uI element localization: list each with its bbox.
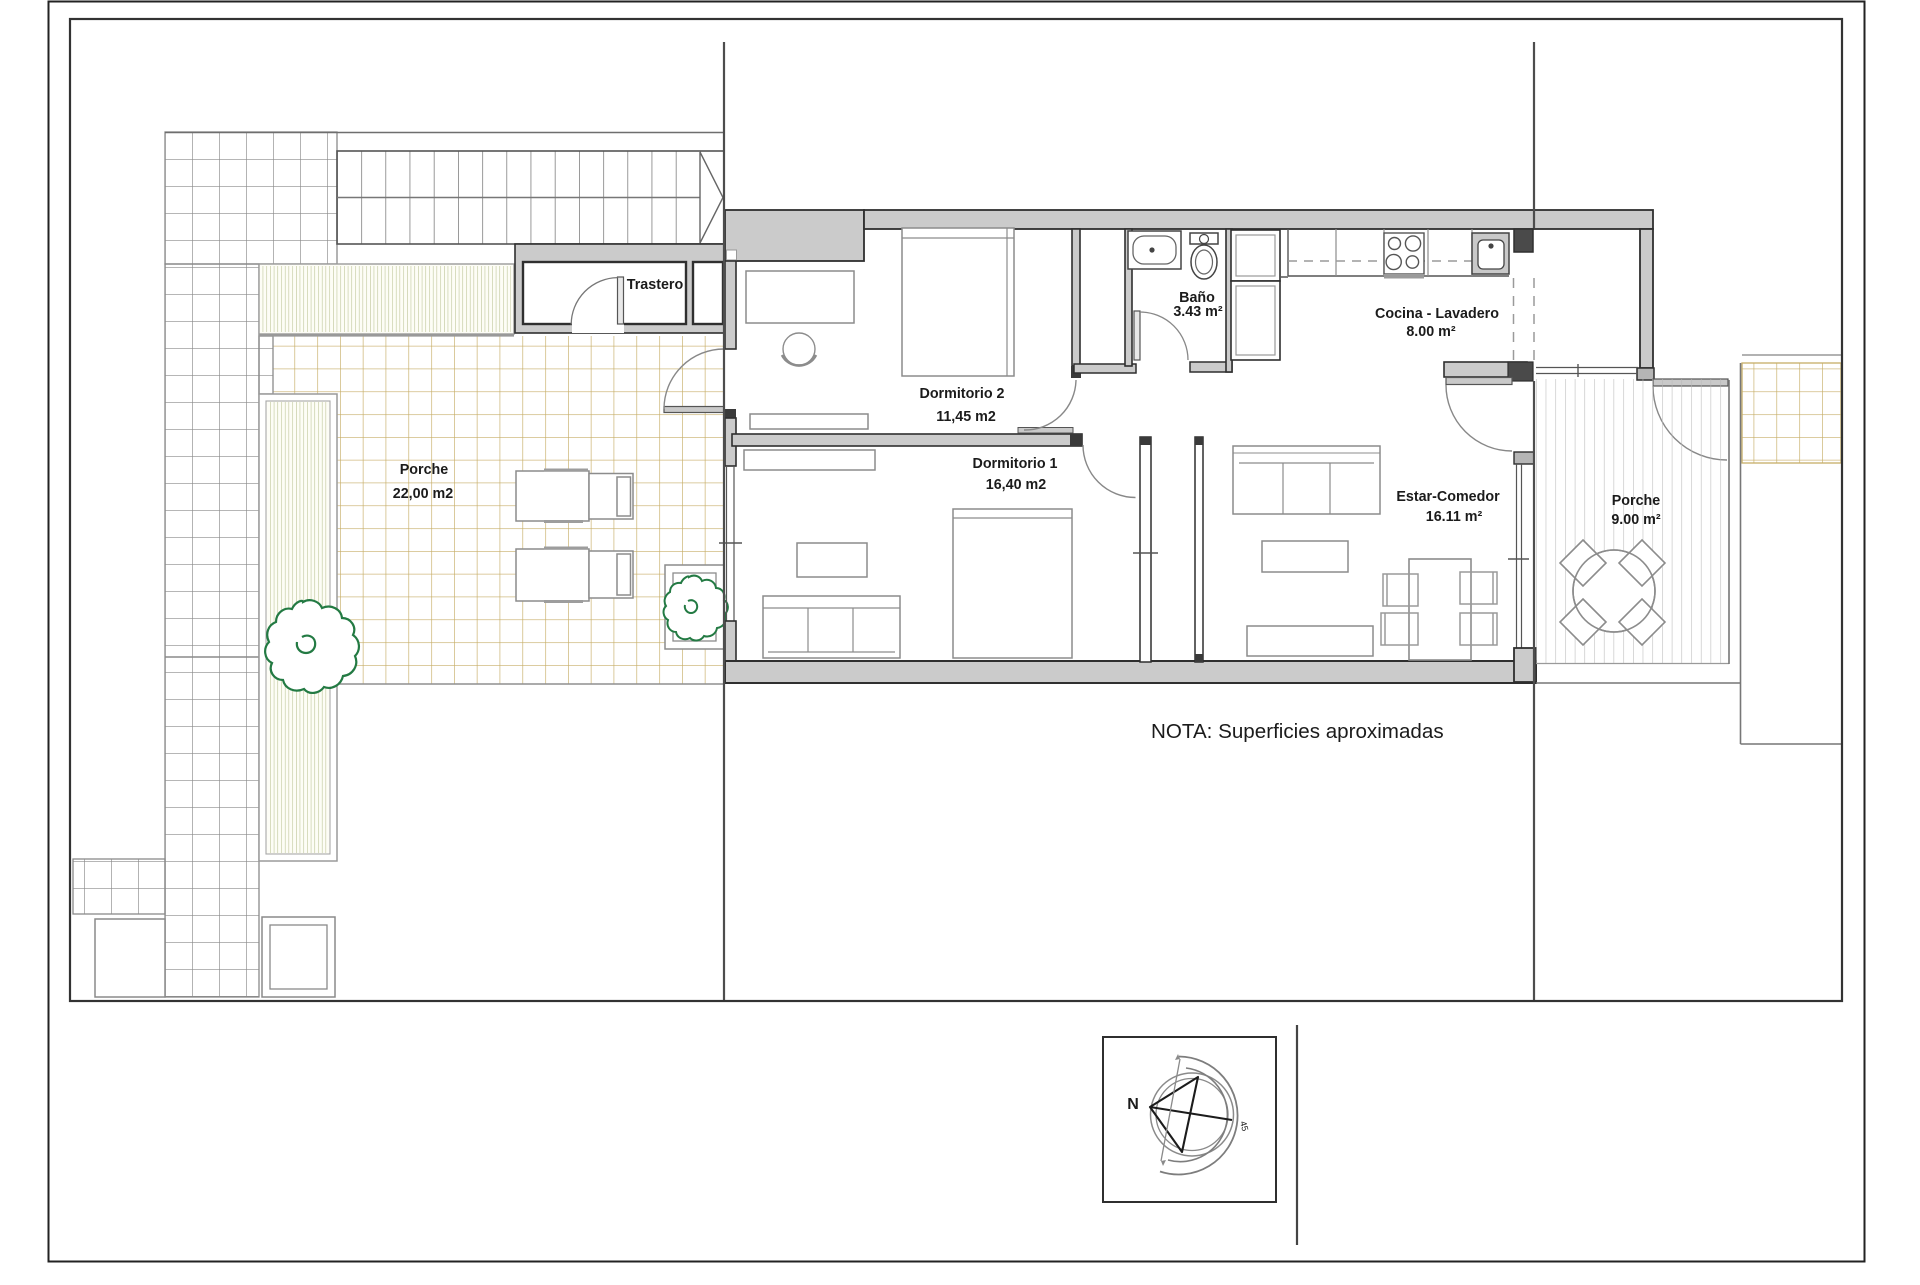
svg-text:11,45 m2: 11,45 m2 (936, 409, 996, 425)
svg-text:N: N (1127, 1096, 1139, 1113)
svg-text:22,00 m2: 22,00 m2 (393, 486, 453, 502)
svg-text:Cocina - Lavadero: Cocina - Lavadero (1375, 306, 1499, 322)
svg-text:16.11 m²: 16.11 m² (1426, 509, 1483, 525)
svg-text:Trastero: Trastero (627, 277, 684, 293)
svg-text:Estar-Comedor: Estar-Comedor (1396, 489, 1500, 505)
svg-text:8.00 m²: 8.00 m² (1406, 324, 1456, 340)
svg-text:16,40 m2: 16,40 m2 (986, 477, 1046, 493)
svg-text:Dormitorio 1: Dormitorio 1 (973, 456, 1058, 472)
svg-text:Porche: Porche (400, 462, 449, 478)
svg-text:Dormitorio 2: Dormitorio 2 (920, 386, 1005, 402)
svg-text:NOTA: Superficies aproximadas: NOTA: Superficies aproximadas (1151, 720, 1444, 743)
svg-text:9.00 m²: 9.00 m² (1611, 512, 1661, 528)
svg-text:3.43 m²: 3.43 m² (1173, 304, 1223, 320)
svg-text:Porche: Porche (1612, 493, 1661, 509)
